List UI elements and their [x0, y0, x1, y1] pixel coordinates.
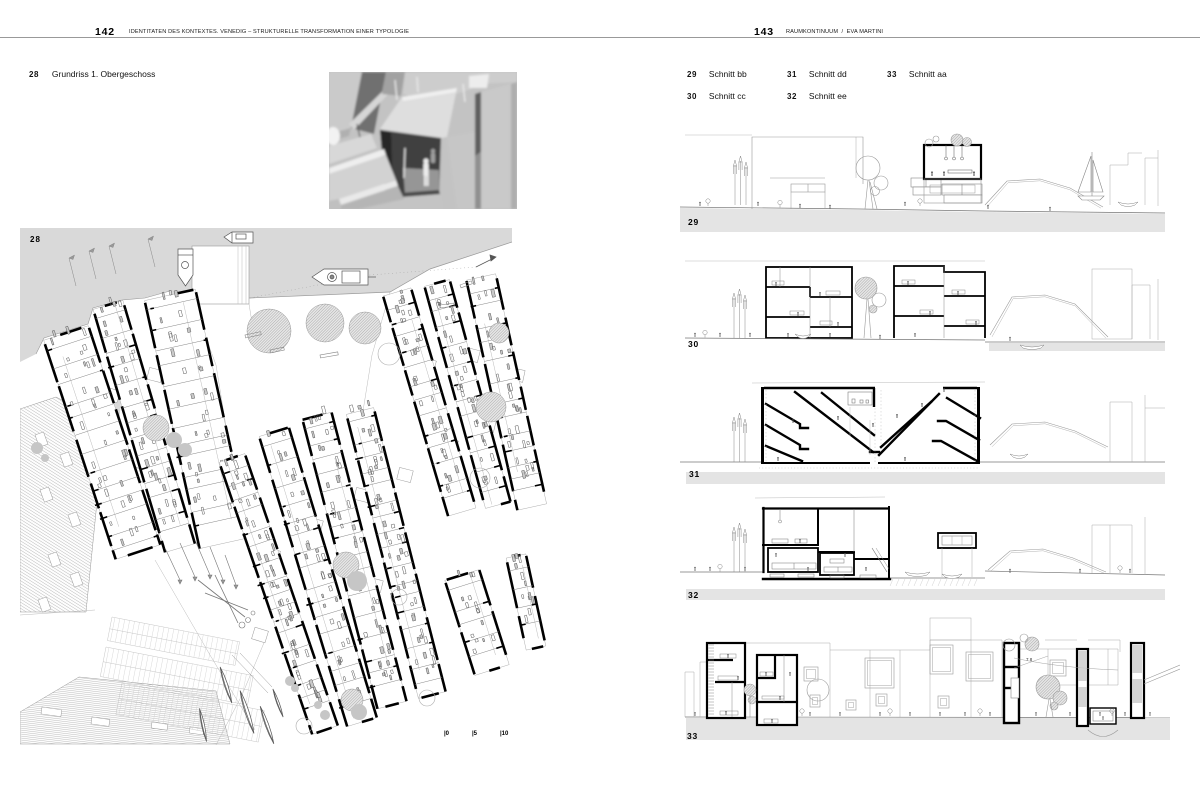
svg-text:31: 31 — [689, 469, 700, 479]
svg-text:33: 33 — [687, 731, 698, 741]
svg-text:|5: |5 — [472, 731, 478, 737]
svg-text:|10: |10 — [500, 731, 509, 737]
svg-text:28: 28 — [30, 235, 41, 244]
svg-text:30: 30 — [688, 339, 699, 349]
svg-text:29: 29 — [688, 217, 699, 227]
svg-text:7 8: 7 8 — [1026, 657, 1033, 662]
svg-text:|0: |0 — [444, 731, 450, 737]
svg-text:32: 32 — [688, 590, 699, 600]
